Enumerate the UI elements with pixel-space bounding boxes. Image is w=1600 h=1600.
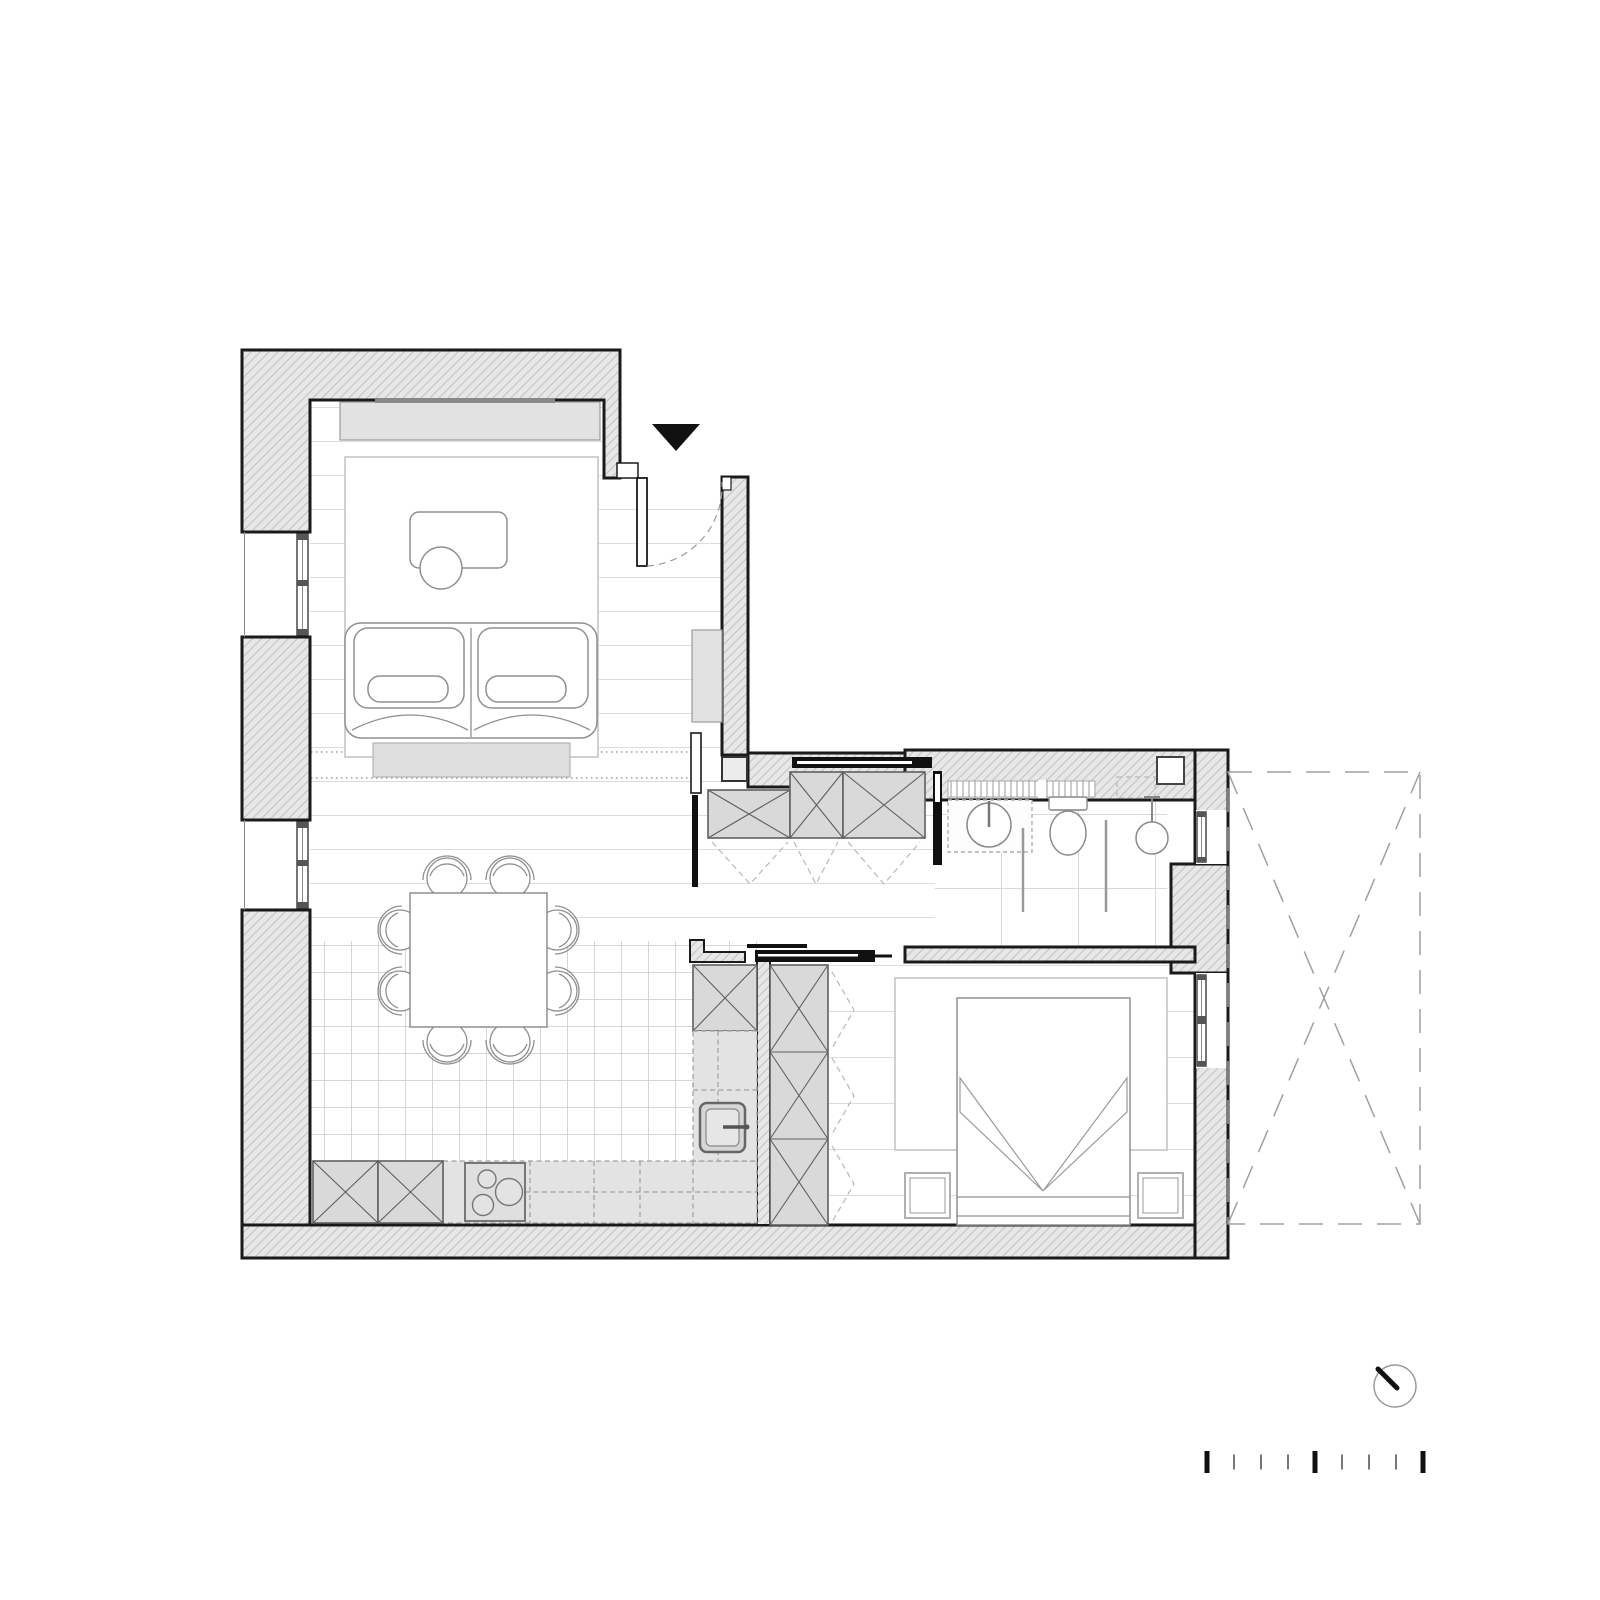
floor-plan-page	[0, 0, 1600, 1600]
entry-door-leaf	[637, 478, 647, 566]
window-bedroom	[1196, 973, 1227, 1068]
double-bed	[957, 998, 1130, 1225]
entry-jamb-step	[617, 463, 638, 478]
wall-bathroom-bedroom	[905, 947, 1195, 962]
washbasin	[948, 800, 1032, 852]
structural-column	[722, 757, 747, 781]
scale-tick-minor	[1368, 1455, 1370, 1470]
entry-jamb-right	[722, 477, 731, 490]
media-console	[340, 402, 600, 440]
radiator-strip	[948, 781, 1095, 797]
floor-plan-drawing	[0, 0, 1600, 1600]
tv	[375, 398, 555, 403]
wall-left-pier	[242, 637, 310, 820]
duct-shaft	[1157, 757, 1184, 784]
sofa	[345, 623, 597, 738]
wall-kitchen-separator	[757, 960, 770, 1225]
scale-bar	[1205, 1451, 1426, 1473]
kitchen-sink	[700, 1103, 750, 1152]
scale-tick-major	[1205, 1451, 1210, 1473]
window-bathroom	[1196, 810, 1227, 864]
nightstand-right	[1138, 1173, 1183, 1218]
bedroom	[747, 944, 1183, 1225]
scale-tick-major	[1313, 1451, 1318, 1473]
sofa-pillow-right	[486, 676, 566, 702]
cooktop	[465, 1163, 525, 1221]
scale-tick-minor	[1260, 1455, 1262, 1470]
toilet	[1049, 797, 1087, 855]
sofa-back-bench	[373, 743, 570, 777]
scale-tick-major	[1421, 1451, 1426, 1473]
dining-table	[410, 893, 547, 1027]
wall-bottom	[242, 1225, 1228, 1258]
sofa-pillow-left	[368, 676, 448, 702]
wall-left-lower	[242, 910, 310, 1230]
entry-shelf	[692, 630, 722, 722]
burner-medium	[473, 1195, 494, 1216]
scale-tick-minor	[1233, 1455, 1235, 1470]
balcony	[1228, 772, 1420, 1224]
burner-large	[496, 1179, 523, 1206]
scale-tick-minor	[1287, 1455, 1289, 1470]
scale-tick-minor	[1341, 1455, 1343, 1470]
nightstand-left	[905, 1173, 950, 1218]
ottoman	[420, 547, 462, 589]
burner-small	[478, 1170, 496, 1188]
north-indicator	[1374, 1365, 1416, 1407]
scale-tick-minor	[1395, 1455, 1397, 1470]
wall-entry-vertical	[722, 477, 748, 755]
entrance-marker-icon	[652, 424, 700, 451]
balcony-x-mark	[1228, 772, 1420, 1224]
